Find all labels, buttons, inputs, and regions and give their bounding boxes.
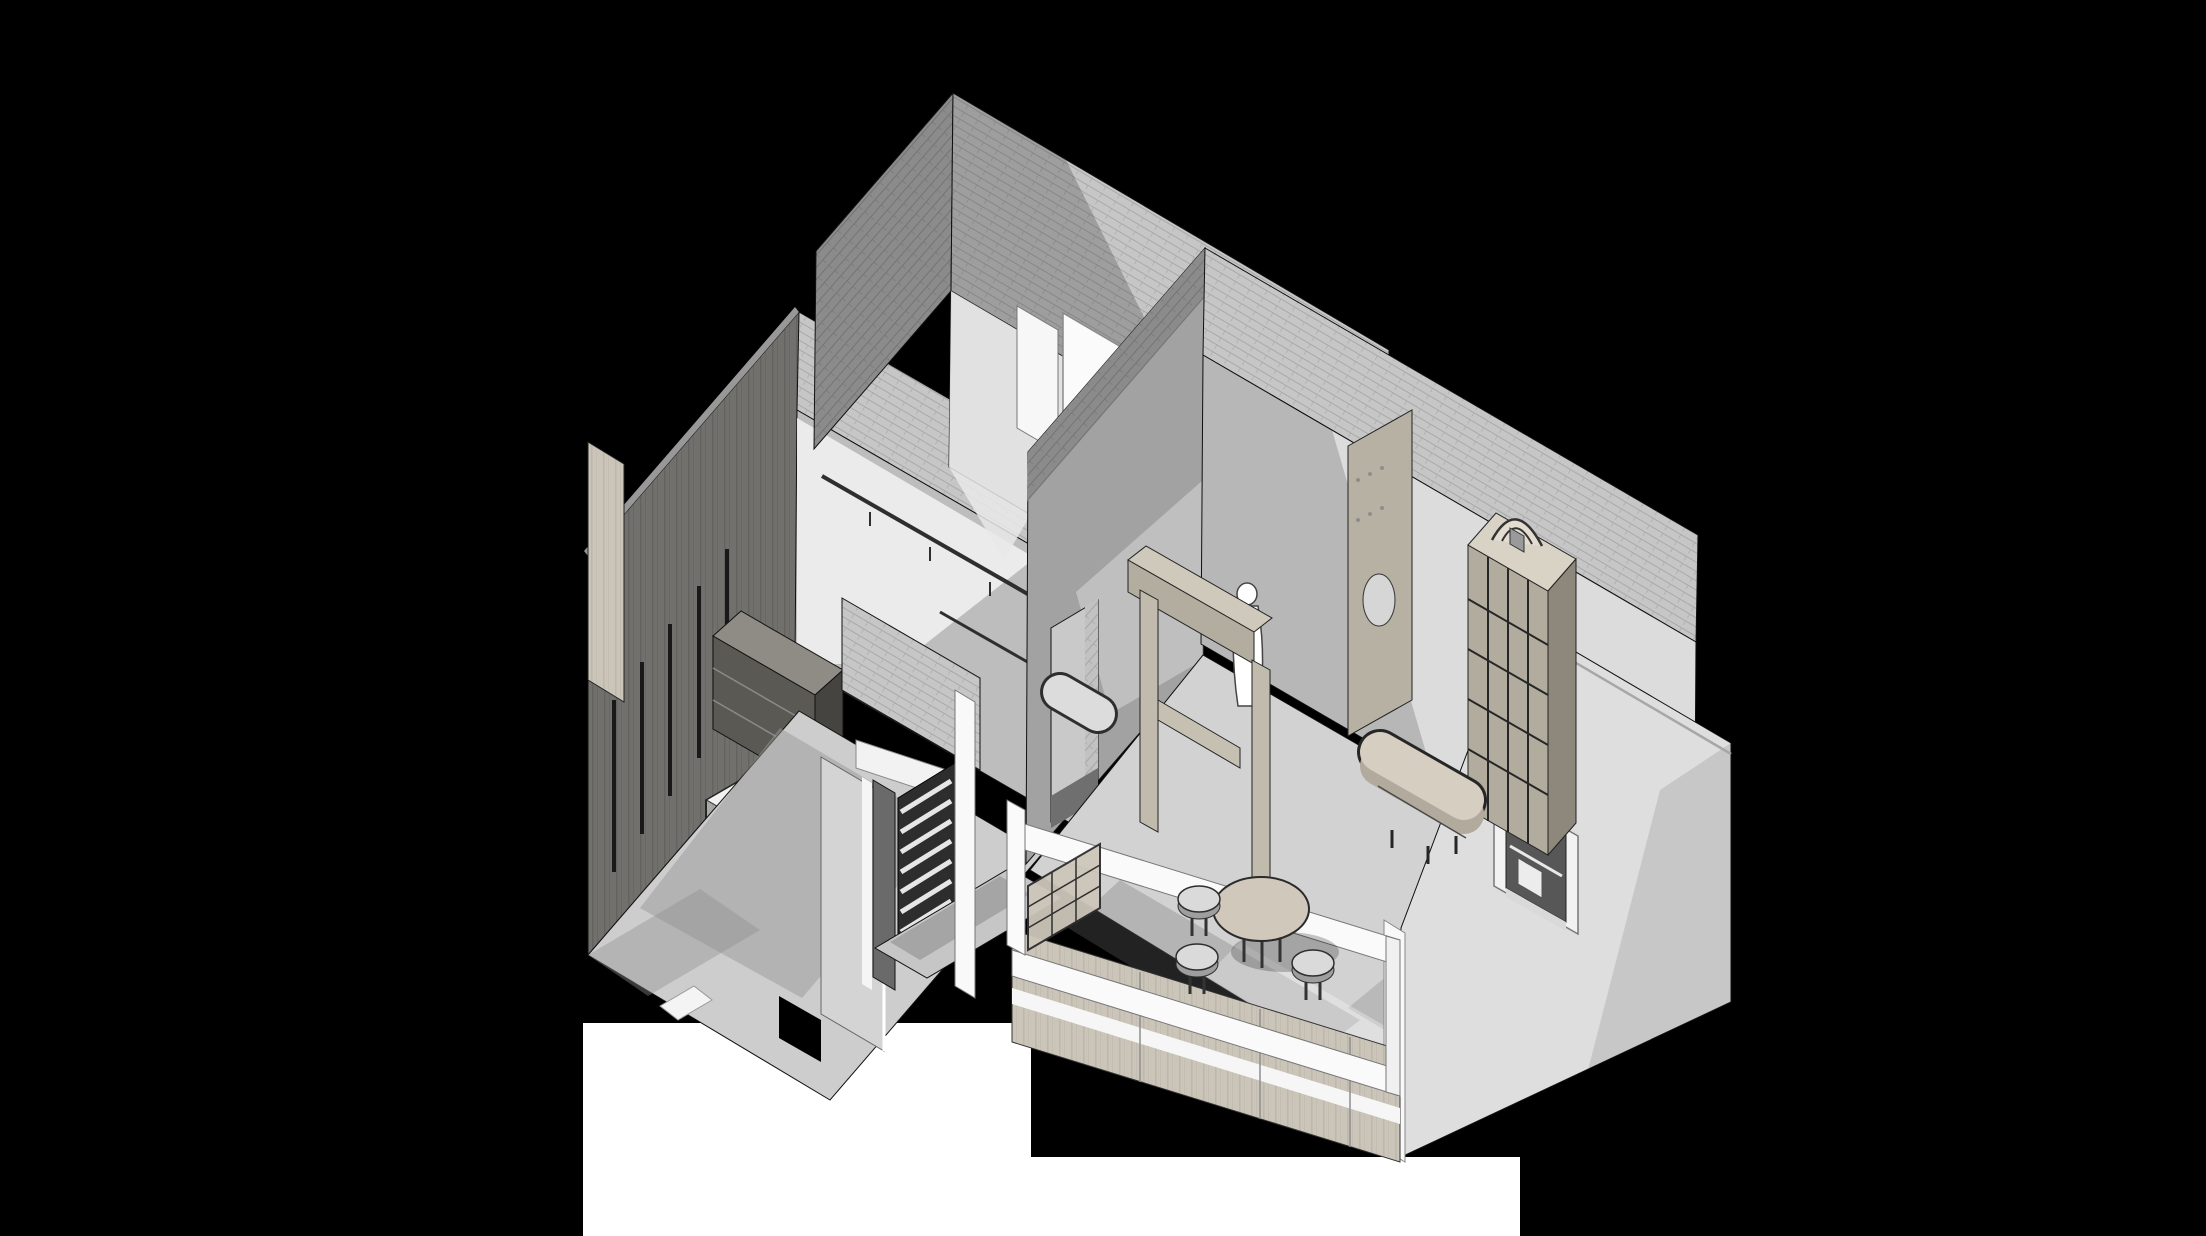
stool-b-top xyxy=(1176,944,1218,970)
storefront-jamb-left xyxy=(1007,800,1025,955)
pegboard-dot-5 xyxy=(1368,512,1372,516)
entry-jamb-dark xyxy=(873,780,895,990)
entry-white-sliver xyxy=(862,777,872,990)
bedframe-post-left xyxy=(1140,590,1158,832)
pegboard-dot-3 xyxy=(1380,466,1384,470)
pegboard-dot-1 xyxy=(1356,478,1360,482)
leaning-plank xyxy=(588,442,624,702)
axonometric-scene-canvas xyxy=(0,0,2206,1236)
pegboard-panel xyxy=(1348,410,1412,736)
bedframe-post-right xyxy=(1252,660,1270,892)
pegboard-dot-6 xyxy=(1380,506,1384,510)
stool-c-top xyxy=(1292,950,1334,976)
apartment-axonometric-rendering xyxy=(0,0,2206,1236)
dining-table-top xyxy=(1213,877,1309,941)
rounded-cabinet xyxy=(1060,692,1098,714)
pegboard-dot-4 xyxy=(1356,518,1360,522)
facade-corner-post xyxy=(955,690,975,998)
storefront-jamb-right xyxy=(1386,936,1400,1096)
canvas-white-bottom xyxy=(1031,1157,1520,1236)
stool-a-top xyxy=(1178,886,1220,912)
pegboard-dot-2 xyxy=(1368,472,1372,476)
pegboard-hole xyxy=(1363,574,1395,626)
gridshelf-side xyxy=(1548,559,1576,855)
